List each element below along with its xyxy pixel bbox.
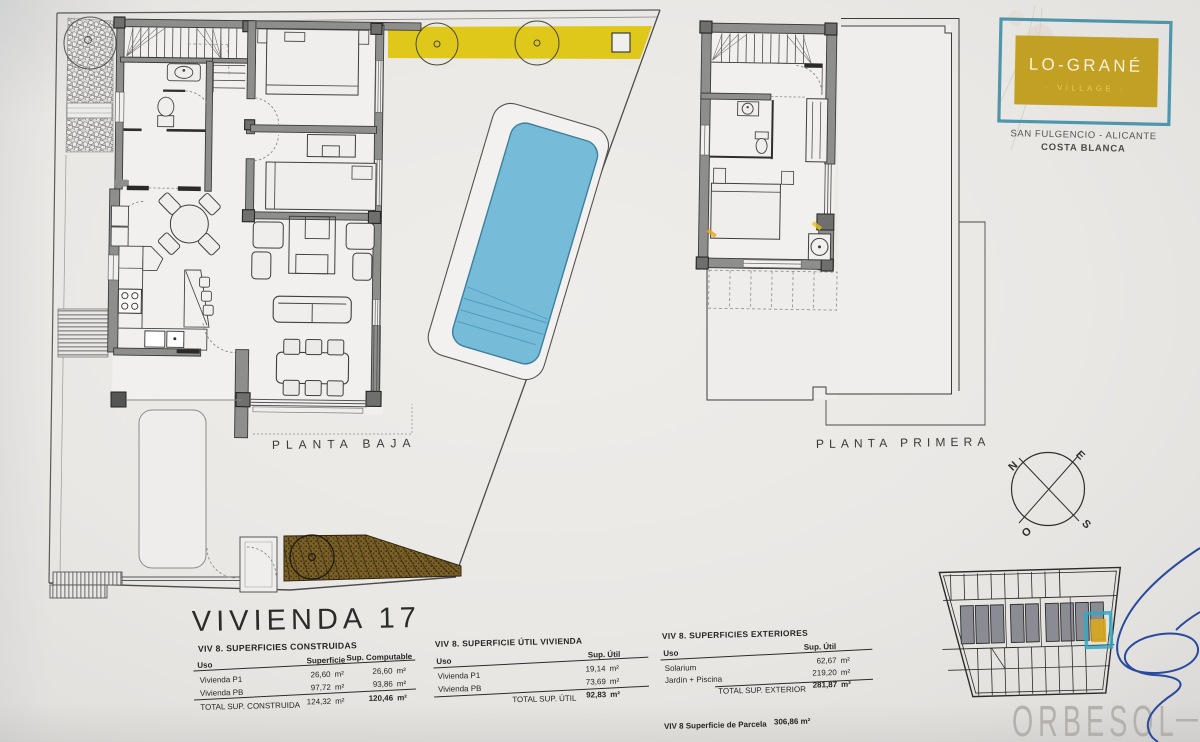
- svg-text:306,86 m²: 306,86 m²: [774, 717, 811, 727]
- svg-text:92,83: 92,83: [586, 690, 607, 699]
- svg-text:VIVIENDA 17: VIVIENDA 17: [192, 602, 422, 638]
- svg-text:62,67: 62,67: [816, 656, 837, 665]
- svg-text:Vivienda PB: Vivienda PB: [200, 688, 244, 698]
- svg-text:m²: m²: [397, 679, 407, 688]
- svg-text:m²: m²: [335, 697, 345, 706]
- svg-text:· VILLAGE ·: · VILLAGE ·: [1045, 83, 1126, 94]
- svg-text:TOTAL SUP. ÚTIL: TOTAL SUP. ÚTIL: [512, 694, 577, 704]
- svg-text:93,86: 93,86: [373, 679, 394, 688]
- svg-text:19,14: 19,14: [585, 664, 606, 673]
- svg-text:281,87: 281,87: [813, 680, 838, 690]
- svg-text:26,60: 26,60: [310, 670, 331, 679]
- svg-text:m²: m²: [841, 680, 851, 689]
- svg-text:120,46: 120,46: [369, 693, 394, 703]
- svg-text:Sup. Útil: Sup. Útil: [804, 642, 837, 652]
- svg-text:219,20: 219,20: [812, 668, 837, 678]
- svg-text:COSTA BLANCA: COSTA BLANCA: [1041, 142, 1126, 155]
- svg-text:73,69: 73,69: [586, 677, 607, 686]
- svg-text:m²: m²: [610, 690, 620, 699]
- svg-text:Vivienda PB: Vivienda PB: [438, 684, 482, 694]
- svg-text:m²: m²: [334, 670, 344, 679]
- svg-text:Vivienda P1: Vivienda P1: [438, 671, 481, 681]
- svg-text:Vivienda P1: Vivienda P1: [200, 675, 243, 685]
- svg-text:97,72: 97,72: [311, 683, 332, 692]
- svg-text:ORBESOL: ORBESOL: [1012, 696, 1179, 742]
- svg-text:m²: m²: [610, 677, 620, 686]
- svg-text:Solarium: Solarium: [665, 663, 697, 673]
- svg-text:124,32: 124,32: [307, 697, 332, 707]
- svg-text:PLANTA PRIMERA: PLANTA PRIMERA: [816, 435, 991, 451]
- svg-text:m²: m²: [609, 664, 619, 673]
- svg-text:m²: m²: [841, 668, 851, 677]
- svg-text:26,60: 26,60: [372, 666, 393, 675]
- svg-text:m²: m²: [840, 656, 850, 665]
- svg-text:m²: m²: [396, 666, 406, 675]
- svg-text:Uso: Uso: [663, 649, 678, 658]
- svg-text:Jardín + Piscina: Jardín + Piscina: [665, 675, 723, 685]
- svg-text:LO-GRANÉ: LO-GRANÉ: [1029, 55, 1144, 76]
- svg-text:Uso: Uso: [197, 661, 212, 670]
- svg-text:PLANTA BAJA: PLANTA BAJA: [272, 436, 417, 452]
- svg-text:m²: m²: [397, 693, 407, 702]
- svg-text:Uso: Uso: [436, 657, 451, 666]
- svg-text:Sup. Útil: Sup. Útil: [588, 650, 621, 660]
- svg-text:m²: m²: [335, 683, 345, 692]
